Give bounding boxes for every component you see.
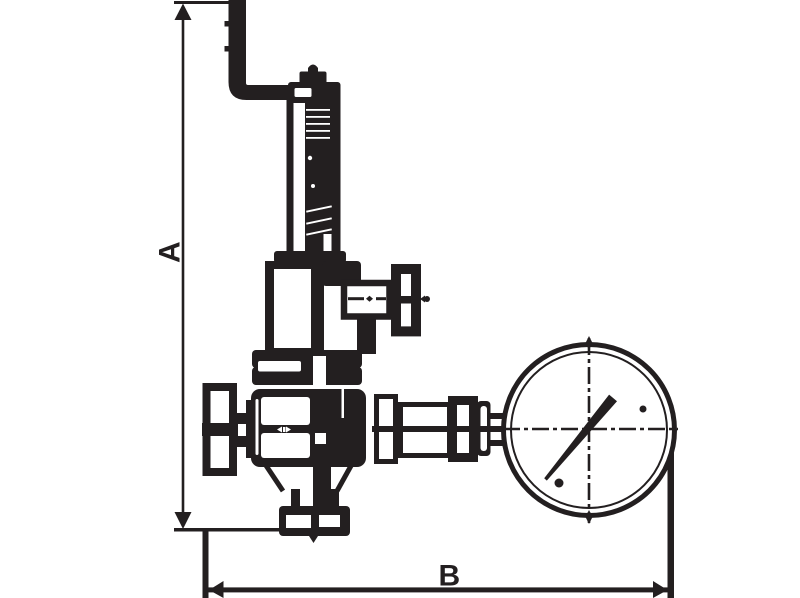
svg-text:A: A xyxy=(154,241,187,263)
svg-text:B: B xyxy=(439,560,461,593)
